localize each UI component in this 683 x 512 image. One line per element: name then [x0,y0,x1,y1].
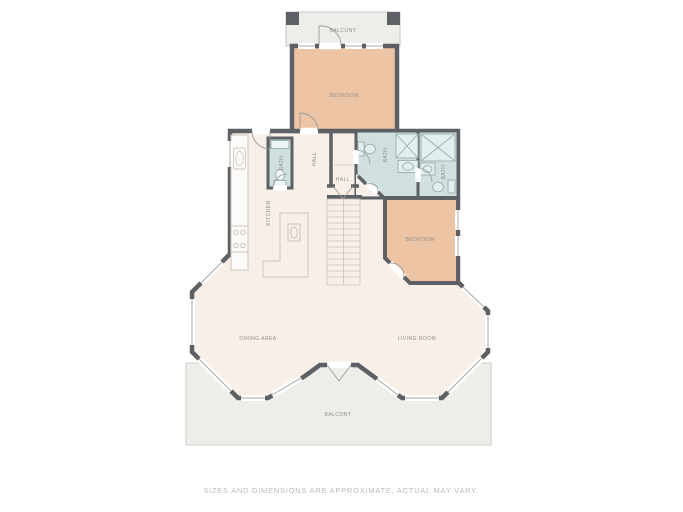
label-balcony-top: BALCONY [329,28,356,34]
label-bedroom-top: BEDROOM [330,93,359,99]
label-bath-1: BATH [279,156,285,171]
toilet-icon [433,182,444,192]
label-hall-vertical: HALL [312,152,318,166]
label-bath-2: BATH [383,148,389,163]
disclaimer-text: SIZES AND DIMENSIONS ARE APPROXIMATE, AC… [203,486,479,495]
sink-icon [271,141,289,149]
label-dining-area: DINING AREA [239,336,276,342]
bedroom-top-floor [292,46,397,131]
toilet-icon [358,142,364,156]
floor-plan-page: BALCONY BEDROOM BATH HALL HALL KITCHEN B… [0,0,683,512]
label-hall: HALL [336,177,350,183]
balcony-post [387,12,400,25]
label-balcony-bottom: BALCONY [324,412,351,418]
floor-plan: BALCONY BEDROOM BATH HALL HALL KITCHEN B… [0,0,683,512]
label-bedroom-right: BEDROOM [406,237,435,243]
label-bath-3: BATH [441,165,447,180]
label-kitchen: KITCHEN [266,200,272,225]
stove-icon [231,226,248,252]
label-living-room: LIVING ROOM [398,336,436,342]
balcony-post [286,12,299,25]
